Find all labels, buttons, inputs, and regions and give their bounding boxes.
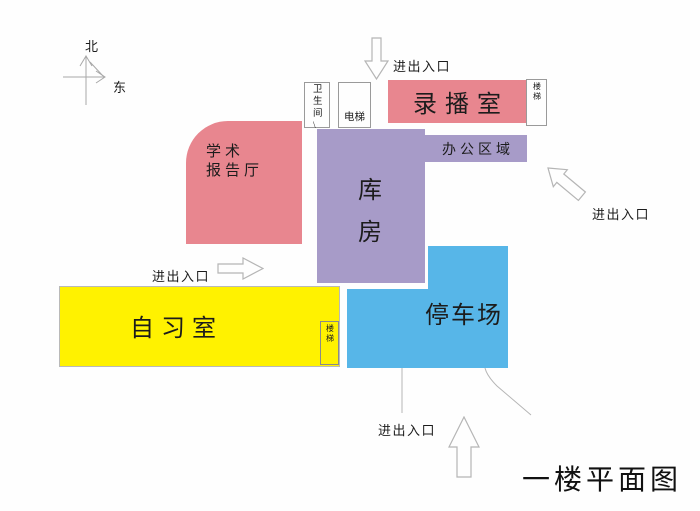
parking-connector-line [400, 368, 404, 413]
room-recording-studio: 录播室 [388, 80, 526, 123]
compass-north-label: 北 [85, 36, 98, 55]
room-lecture-hall: 学术 报告厅 [186, 121, 302, 244]
entrance-arrow-up-icon [448, 416, 481, 478]
floor-plan-canvas: 北 东 进出入口 卫生间\ 电梯 录播室 楼梯 学术 报告厅 库房 办公区域 进… [0, 0, 700, 511]
room-warehouse-label: 库房 [358, 129, 384, 254]
room-office-area-label: 办公区域 [442, 139, 514, 159]
room-stairs-recording-label: 楼梯 [533, 82, 541, 101]
room-lecture-hall-label-line1: 学术 [206, 143, 263, 162]
page-title: 一楼平面图 [522, 458, 682, 498]
room-lecture-hall-label-line2: 报告厅 [206, 162, 263, 181]
room-restroom: 卫生间\ [304, 82, 330, 128]
room-elevator: 电梯 [338, 82, 371, 128]
room-parking-upper [428, 246, 508, 292]
room-parking-lot: 停车场 [347, 289, 508, 368]
room-restroom-label: 卫生间\ [313, 85, 323, 131]
room-recording-studio-label: 录播室 [413, 84, 509, 119]
room-stairs-study: 楼梯 [320, 321, 339, 365]
entrance-right-label: 进出入口 [592, 204, 650, 223]
compass-east-label: 东 [113, 77, 126, 96]
room-stairs-study-label: 楼梯 [326, 324, 334, 343]
room-stairs-recording: 楼梯 [526, 79, 547, 126]
room-study-room: 自习室 楼梯 [59, 286, 340, 367]
room-warehouse: 库房 [317, 129, 425, 283]
entrance-top-label: 进出入口 [393, 56, 451, 75]
entrance-left-label: 进出入口 [152, 266, 210, 285]
entrance-arrow-right-icon [217, 257, 264, 280]
room-study-room-label: 自习室 [130, 308, 223, 343]
parking-connector-diagonal-line [483, 368, 533, 416]
room-office-area: 办公区域 [425, 135, 527, 162]
entrance-arrow-down-icon [364, 37, 389, 80]
entrance-bottom-label: 进出入口 [378, 420, 436, 439]
room-elevator-label: 电梯 [344, 109, 365, 124]
entrance-arrow-upleft-icon [546, 166, 592, 204]
room-parking-lot-label: 停车场 [425, 295, 503, 330]
